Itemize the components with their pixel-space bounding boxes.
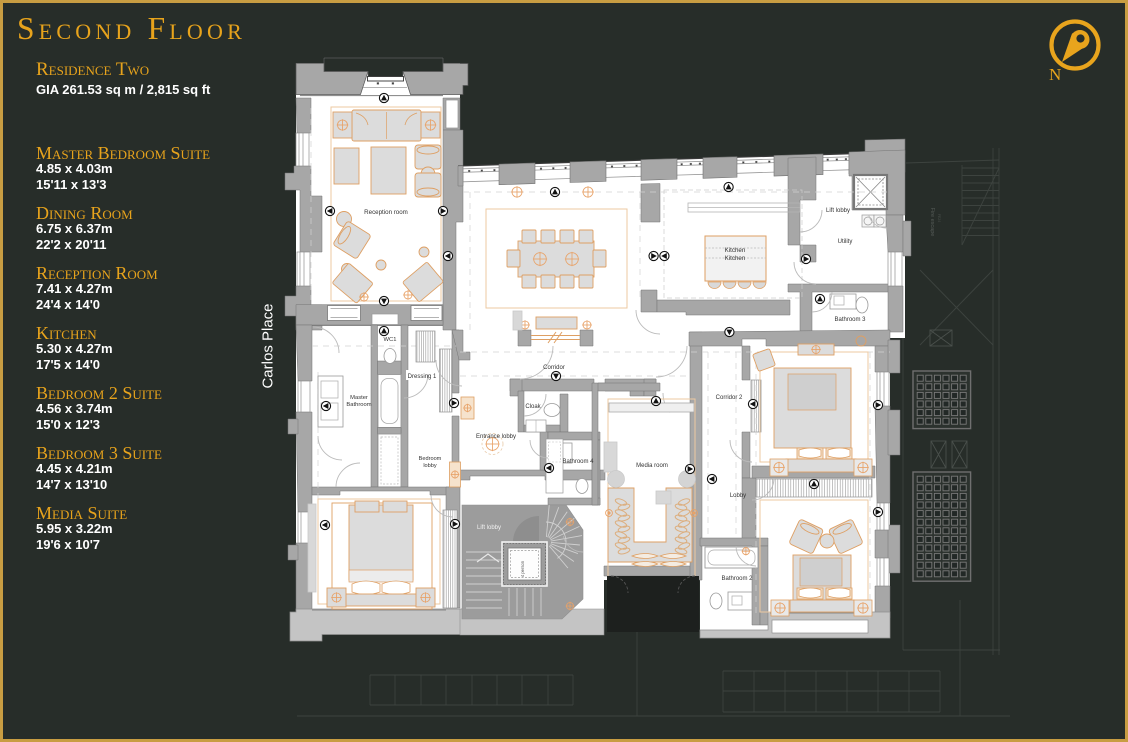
svg-text:Lift lobby: Lift lobby <box>477 525 501 531</box>
svg-text:Lift lobby: Lift lobby <box>826 208 850 214</box>
svg-text:N: N <box>1049 65 1061 84</box>
svg-text:Bathroom 4: Bathroom 4 <box>562 459 594 465</box>
svg-text:Bathroom 3: Bathroom 3 <box>834 317 866 323</box>
svg-text:Kitchen: Kitchen <box>725 255 746 262</box>
svg-text:Bathroom 2: Bathroom 2 <box>721 576 753 582</box>
svg-text:Corridor: Corridor <box>543 365 565 371</box>
svg-text:WC1: WC1 <box>384 337 397 343</box>
svg-text:Master: Master <box>350 395 368 401</box>
svg-text:4 person: 4 person <box>520 560 525 577</box>
svg-text:FE24: FE24 <box>937 214 941 222</box>
svg-text:Bathroom: Bathroom <box>346 402 371 408</box>
svg-text:Fire escape: Fire escape <box>929 208 935 237</box>
svg-text:Media room: Media room <box>636 463 668 469</box>
svg-text:Dressing 1: Dressing 1 <box>408 374 437 380</box>
svg-text:Lobby: Lobby <box>730 493 746 499</box>
svg-text:Entrance lobby: Entrance lobby <box>476 434 516 440</box>
svg-text:Kitchen: Kitchen <box>725 247 746 254</box>
svg-text:Cloak: Cloak <box>525 404 541 410</box>
svg-text:Utility: Utility <box>838 239 853 245</box>
svg-text:lobby: lobby <box>423 463 437 469</box>
svg-text:Reception room: Reception room <box>364 209 408 216</box>
svg-text:Bedroom: Bedroom <box>419 456 442 462</box>
svg-text:Corridor 2: Corridor 2 <box>716 395 743 401</box>
